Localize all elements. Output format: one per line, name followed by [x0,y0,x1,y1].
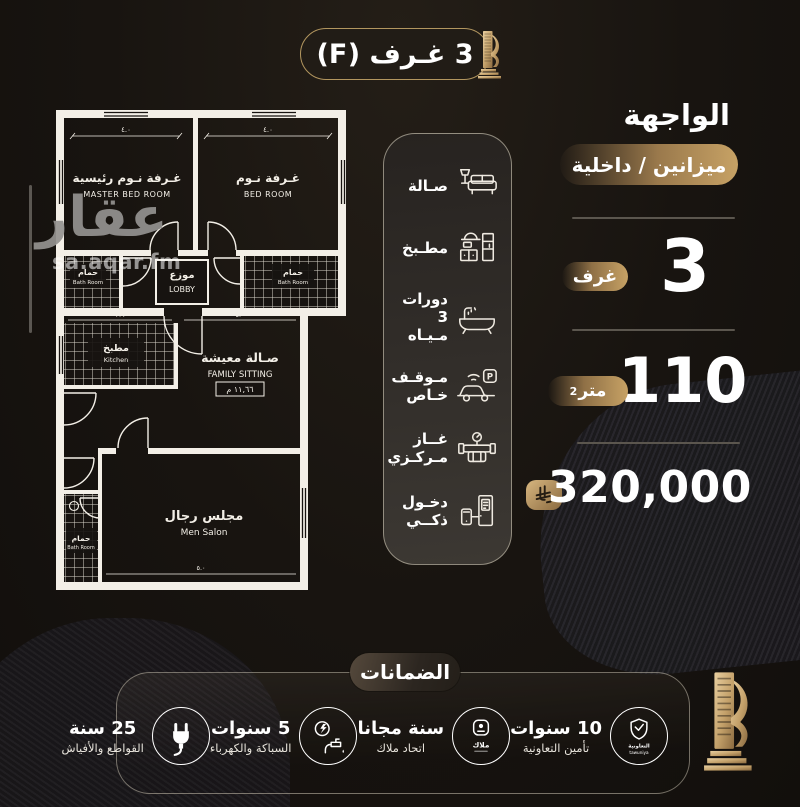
family-sitting-label-ar: صـالة معيشة [201,350,279,365]
plug-icon [152,707,210,765]
feature-label: دورات 3 مـيـاه [392,291,448,344]
facade-value-pill: ميزانين / داخلية [560,144,738,185]
men-salon-label-en: Men Salon [181,528,228,538]
svg-text:التعاونية: التعاونية [628,744,650,750]
plumbing-electric-icon [299,707,357,765]
dim-bedroom: ٤.٠ [263,126,273,134]
bath-right-label-ar: حمام [283,268,303,277]
area-value: 110 [618,350,738,412]
guarantee-title: سنة مجانا [357,718,444,739]
svg-text:P: P [487,372,493,382]
family-sitting-label-en: FAMILY SITTING [208,370,273,380]
rooms-count: 3 [645,230,725,302]
divider [577,442,740,444]
smart-lock-icon [455,492,499,532]
kitchen-icon [455,229,499,269]
company-building-logo-icon [468,29,516,81]
rooms-unit-pill: غرف [562,262,628,291]
guarantees-heading: الضمانات [350,653,460,691]
watermark-site: sa.aqar.fm [52,250,181,274]
guarantee-switches-sockets: 25 سنة القواطع والأفياش [61,707,209,765]
area-unit-pill: متر2 [548,376,628,406]
feature-label: صـالة [408,178,448,196]
bedroom-label-en: BED ROOM [244,190,292,199]
master-bedroom-label-ar: غـرفة نـوم رئيسية [73,171,182,186]
gas-meter-icon [455,429,499,469]
watermark-brand: عقار [36,190,154,246]
bath-bottom-label-ar: حمام [72,534,91,543]
bath-left-label-en: Bath Room [73,280,103,286]
guarantee-subtitle: السباكة والكهرباء [210,741,292,755]
bathtub-icon [455,298,499,338]
feature-bathrooms: دورات 3 مـيـاه [392,291,503,344]
price-value: 320,000 [548,466,746,510]
feature-label: دخـول ذكــي [402,494,448,529]
guarantee-text: 25 سنة القواطع والأفياش [61,718,143,755]
kitchen-label-ar: مطبخ [103,343,129,354]
guarantee-subtitle: القواطع والأفياش [61,741,143,755]
lobby-label-en: LOBBY [169,285,195,294]
parking-icon: P [455,367,499,407]
guarantee-plumbing-electric: 5 سنوات السباكة والكهرباء [210,707,358,765]
dim-master: ٤.٠ [121,126,131,134]
guarantee-owners-union: ملاك سنة مجانا اتحاد ملاك [357,707,510,765]
feature-label: غــاز مـركـزي [387,431,448,466]
svg-text:tawuniya: tawuniya [629,750,649,755]
area-superscript: 2 [570,385,578,398]
feature-kitchen: مطـبخ [392,229,503,269]
feature-central-gas: غــاز مـركـزي [392,429,503,469]
floor-plan: غـرفة نـوم رئيسية MASTER BED ROOM غـرفة … [56,108,350,604]
company-building-logo-icon [702,668,764,776]
rooms-unit: غرف [573,266,617,287]
watermark-frame-line [29,185,32,333]
feature-living-room: صـالة [392,166,503,206]
guarantee-text: 5 سنوات السباكة والكهرباء [210,718,292,755]
kitchen-label-en: Kitchen [104,356,128,364]
bedroom-label-ar: غـرفة نـوم [236,171,300,186]
bath-bottom-label-en: Bath Room [67,545,95,551]
malak-logo-icon: ملاك [452,707,510,765]
divider [572,329,735,331]
guarantee-text: 10 سنوات تأمين التعاونية [510,718,602,755]
tawuniya-logo-icon: التعاونية tawuniya [610,707,668,765]
guarantee-text: سنة مجانا اتحاد ملاك [357,718,444,755]
svg-text:ملاك: ملاك [473,741,490,750]
guarantee-title: 5 سنوات [210,718,292,739]
guarantee-title: 25 سنة [61,718,143,739]
feature-private-parking: P مـوقـف خـاص [392,367,503,407]
family-area-value: ١١,٦٦ م [226,385,253,394]
facade-heading: الواجهة [623,98,730,132]
feature-label: مطـبخ [402,240,448,258]
feature-label: مـوقـف خـاص [391,369,448,404]
divider [572,217,735,219]
guarantee-title: 10 سنوات [510,718,602,739]
sofa-icon [455,166,499,206]
dim-salon: ٥.٠ [196,564,205,572]
page-title: 3 غـرف (F) [316,39,473,70]
area-unit: متر [578,381,606,401]
dim-kitchen: ٣.٦ [115,311,125,319]
feature-smart-entry: دخـول ذكــي [392,492,503,532]
guarantee-subtitle: اتحاد ملاك [357,741,444,755]
real-estate-flyer: 3 غـرف (F) [0,0,800,807]
guarantee-insurance: التعاونية tawuniya 10 سنوات تأمين التعاو… [510,707,668,765]
facade-value: ميزانين / داخلية [572,153,727,177]
bath-right-label-en: Bath Room [278,280,308,286]
title-banner: 3 غـرف (F) [300,28,490,80]
features-panel: صـالة مطـبخ دورات 3 مـيـاه P [383,133,512,565]
men-salon-label-ar: مجلس رجال [165,509,244,524]
dim-family: ٥.٠ [235,311,244,319]
guarantee-subtitle: تأمين التعاونية [510,741,602,755]
